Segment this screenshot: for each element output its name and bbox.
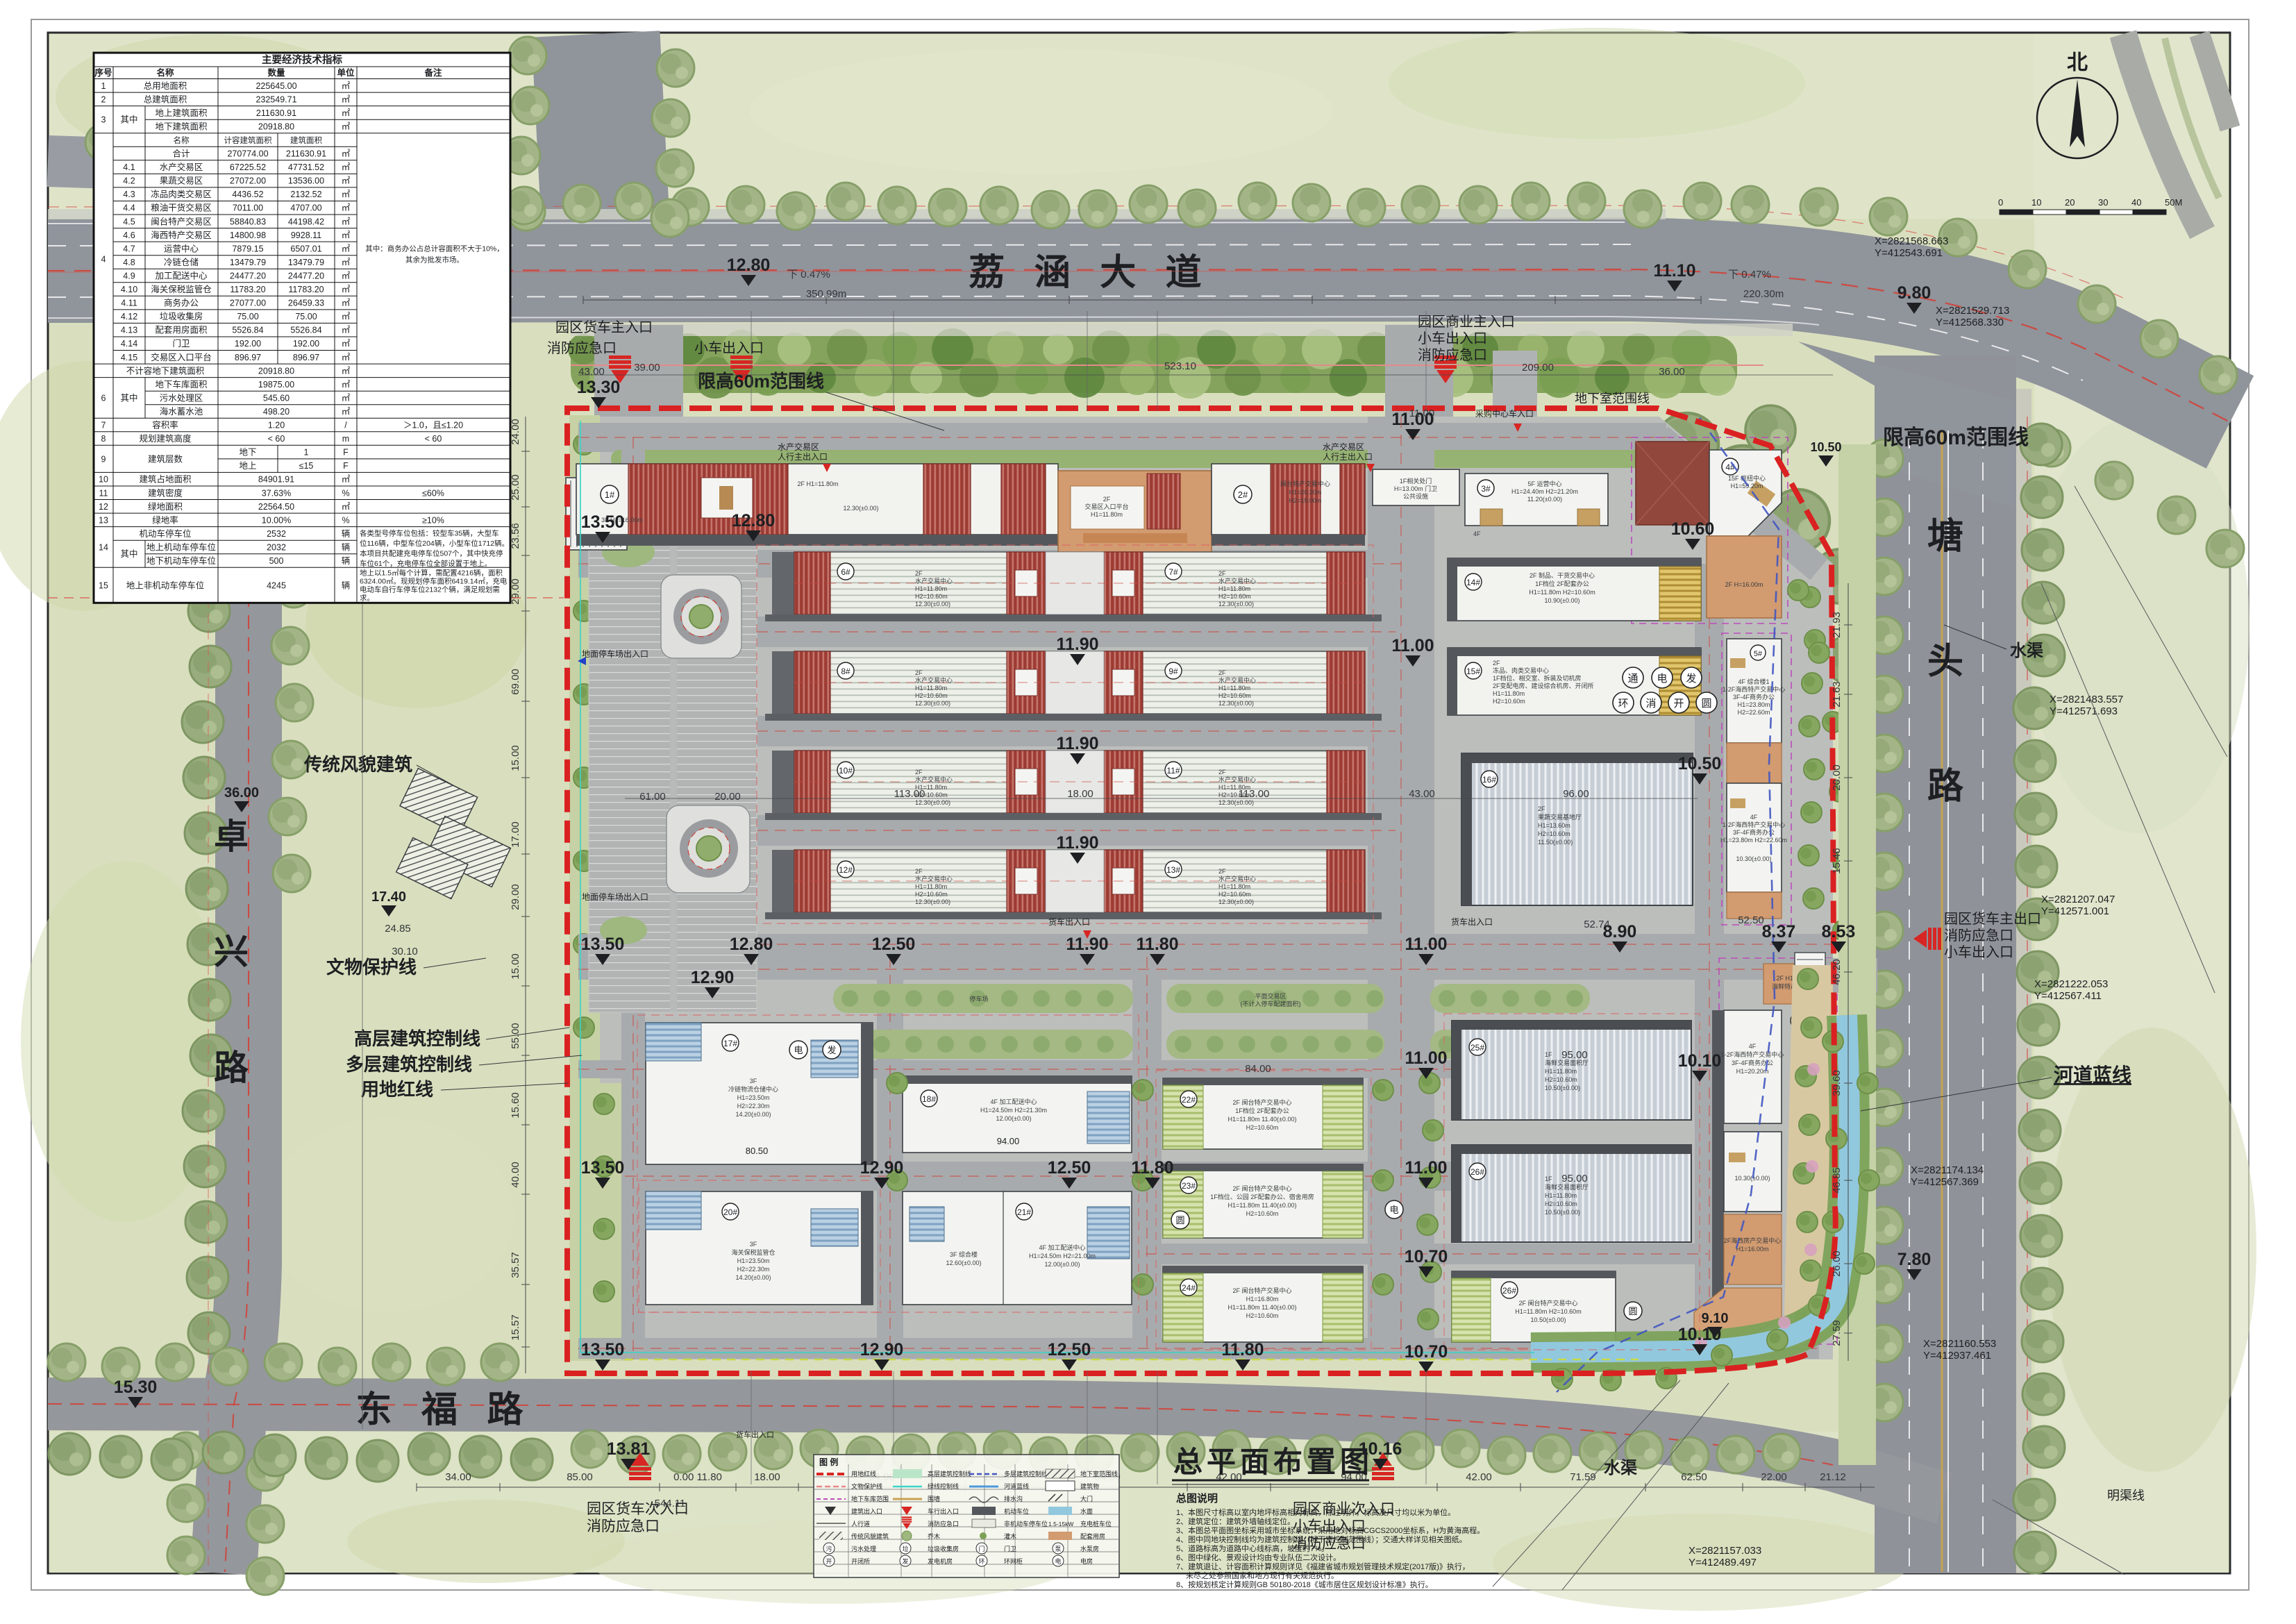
svg-text:9.80: 9.80 [1897, 283, 1932, 303]
svg-text:2F: 2F [1103, 496, 1111, 503]
svg-text:4F 加工配送中心: 4F 加工配送中心 [990, 1098, 1037, 1105]
svg-text:H2=22.30m: H2=22.30m [737, 1103, 770, 1110]
svg-text:15.00: 15.00 [510, 953, 521, 980]
svg-text:高层建筑控制线: 高层建筑控制线 [354, 1028, 480, 1049]
svg-text:消防应急口: 消防应急口 [928, 1520, 959, 1527]
svg-text:15.60: 15.60 [510, 1092, 521, 1119]
svg-text:北: 北 [2067, 51, 2088, 74]
svg-text:4.9: 4.9 [123, 271, 135, 281]
svg-text:水产交易区: 水产交易区 [778, 442, 819, 452]
svg-text:225645.00: 225645.00 [255, 81, 296, 91]
svg-text:21.12: 21.12 [1820, 1471, 1846, 1483]
svg-text:明渠线: 明渠线 [2107, 1489, 2145, 1502]
svg-text:4F: 4F [1749, 1043, 1757, 1050]
svg-text:H2=10.60m: H2=10.60m [915, 891, 948, 898]
svg-text:海西特产交易区: 海西特产交易区 [151, 230, 212, 240]
svg-text:11.90: 11.90 [1056, 734, 1098, 753]
svg-text:10.50(±0.00): 10.50(±0.00) [1531, 1316, 1566, 1323]
svg-text:路: 路 [214, 1048, 249, 1087]
svg-text:39.60: 39.60 [1831, 1070, 1843, 1096]
svg-text:4F: 4F [1750, 814, 1758, 821]
svg-text:30.10: 30.10 [392, 946, 418, 957]
svg-text:传统风貌建筑: 传统风貌建筑 [303, 754, 412, 775]
svg-text:12: 12 [99, 502, 108, 512]
svg-text:18.00: 18.00 [754, 1471, 780, 1483]
svg-text:辆: 辆 [342, 529, 351, 539]
svg-text:2F: 2F [1218, 669, 1226, 676]
svg-text:H2=10.60m: H2=10.60m [1218, 593, 1251, 600]
svg-text:29.00: 29.00 [510, 884, 521, 910]
svg-text:4.15: 4.15 [121, 353, 137, 362]
svg-text:序号: 序号 [94, 67, 112, 78]
svg-text:80.50: 80.50 [746, 1146, 769, 1156]
svg-text:绿线控制线: 绿线控制线 [928, 1482, 959, 1490]
svg-text:X=2821529.713: X=2821529.713 [1936, 305, 2009, 317]
svg-text:开: 开 [826, 1558, 832, 1565]
svg-text:≤15: ≤15 [299, 461, 314, 471]
svg-text:84901.91: 84901.91 [258, 475, 294, 485]
svg-text:/: / [344, 421, 347, 430]
svg-text:H2=10.60m: H2=10.60m [915, 593, 948, 600]
svg-text:X=2821174.134: X=2821174.134 [1911, 1164, 1984, 1176]
svg-text:地面停车场出入口: 地面停车场出入口 [582, 648, 648, 659]
svg-text:总用地面积: 总用地面积 [144, 81, 187, 91]
svg-text:Y=412937.461: Y=412937.461 [1923, 1350, 1991, 1362]
svg-text:4.13: 4.13 [121, 326, 137, 335]
svg-text:㎡: ㎡ [342, 217, 351, 226]
svg-text:运营中心: 运营中心 [164, 243, 199, 253]
svg-text:24#: 24# [1182, 1283, 1196, 1293]
svg-text:其中: 其中 [120, 392, 137, 403]
svg-text:12.30(±0.00): 12.30(±0.00) [915, 601, 950, 608]
svg-text:建筑占地面积: 建筑占地面积 [139, 474, 191, 485]
svg-text:13.50: 13.50 [581, 1340, 625, 1359]
svg-text:84.00: 84.00 [1245, 1063, 1271, 1075]
svg-text:配套用房面积: 配套用房面积 [155, 325, 207, 335]
svg-text:113.00: 113.00 [894, 788, 925, 800]
svg-text:H1=23.80m: H1=23.80m [1738, 701, 1770, 708]
svg-text:544.11: 544.11 [655, 1498, 686, 1509]
svg-text:69.00: 69.00 [510, 669, 521, 695]
svg-text:11.00: 11.00 [1409, 408, 1434, 419]
svg-text:建筑物: 建筑物 [1080, 1482, 1099, 1490]
svg-text:10.30(±0.00): 10.30(±0.00) [1736, 855, 1772, 862]
svg-text:商务办公: 商务办公 [164, 298, 199, 308]
svg-text:27.59: 27.59 [1831, 1320, 1843, 1346]
svg-text:20: 20 [2065, 197, 2075, 208]
svg-text:H1=11.80m: H1=11.80m [1218, 685, 1250, 692]
svg-text:18#: 18# [922, 1094, 936, 1104]
svg-text:17.40: 17.40 [371, 889, 406, 905]
svg-text:容积率: 容积率 [152, 420, 178, 430]
svg-text:H2=10.60m: H2=10.60m [1218, 692, 1251, 699]
svg-text:位116辆，中型车位204辆，小型车位1712辆。: 位116辆，中型车位204辆，小型车位1712辆。 [360, 539, 509, 548]
svg-text:2F H1=11.80m: 2F H1=11.80m [797, 480, 838, 487]
svg-text:15.57: 15.57 [510, 1314, 521, 1341]
svg-text:H1=11.80m H2=10.60m: H1=11.80m H2=10.60m [1515, 1308, 1581, 1315]
svg-text:10.50(±0.00): 10.50(±0.00) [1545, 1209, 1580, 1216]
svg-text:㎡: ㎡ [342, 108, 351, 118]
svg-text:0: 0 [1998, 197, 2003, 208]
svg-text:2F变配电房、建设综合机房、开闭所: 2F变配电房、建设综合机房、开闭所 [1493, 682, 1594, 689]
svg-text:㎡: ㎡ [342, 190, 351, 199]
svg-text:12.50: 12.50 [1048, 1158, 1091, 1178]
svg-text:12.80: 12.80 [730, 935, 773, 954]
svg-text:地下车库范围: 地下车库范围 [851, 1495, 889, 1502]
svg-text:12.30(±0.00): 12.30(±0.00) [1218, 601, 1254, 608]
svg-text:2F: 2F [915, 769, 923, 776]
svg-text:H2=10.60m: H2=10.60m [1218, 891, 1251, 898]
svg-text:12.00(±0.00): 12.00(±0.00) [996, 1115, 1032, 1122]
svg-text:20.00: 20.00 [714, 791, 741, 803]
svg-text:75.00: 75.00 [295, 312, 317, 321]
svg-text:H1=23.50m: H1=23.50m [737, 1257, 770, 1264]
svg-text:≥10%: ≥10% [422, 515, 444, 525]
svg-text:门卫: 门卫 [1004, 1545, 1016, 1552]
svg-text:传统风貌建筑: 传统风貌建筑 [851, 1532, 889, 1540]
svg-text:192.00: 192.00 [235, 339, 261, 349]
svg-text:H1=11.80m: H1=11.80m [1218, 883, 1250, 890]
svg-text:建筑层数: 建筑层数 [148, 453, 183, 464]
svg-text:10.50: 10.50 [1678, 754, 1722, 773]
svg-text:18.00: 18.00 [1067, 788, 1093, 800]
svg-text:29.00: 29.00 [510, 578, 521, 605]
svg-text:泵: 泵 [1055, 1546, 1061, 1552]
svg-text:2F: 2F [1538, 805, 1545, 812]
svg-text:消防应急口: 消防应急口 [1944, 928, 2013, 944]
svg-text:13.50: 13.50 [581, 1158, 625, 1178]
svg-text:X=2821483.557: X=2821483.557 [2050, 694, 2123, 705]
svg-text:4.11: 4.11 [121, 299, 137, 308]
svg-text:㎡: ㎡ [342, 94, 351, 104]
svg-text:闽台特产交易区: 闽台特产交易区 [151, 216, 212, 226]
svg-text:㎡: ㎡ [342, 203, 351, 213]
svg-text:10.90(±0.00): 10.90(±0.00) [1545, 597, 1580, 604]
svg-text:11.00: 11.00 [1391, 636, 1434, 655]
svg-text:水泵房: 水泵房 [1080, 1545, 1099, 1552]
svg-text:8.37: 8.37 [1762, 922, 1796, 941]
svg-text:H1=11.80m: H1=11.80m [1218, 585, 1250, 592]
svg-text:㎡: ㎡ [342, 271, 351, 281]
svg-text:＞1.0，且≤1.20: ＞1.0，且≤1.20 [403, 421, 463, 430]
svg-text:%: % [342, 488, 349, 498]
svg-text:0.00 11.80: 0.00 11.80 [673, 1471, 722, 1483]
svg-text:4.8: 4.8 [123, 258, 135, 267]
svg-text:规划建筑高度: 规划建筑高度 [139, 433, 192, 444]
svg-text:2F: 2F [1493, 660, 1500, 667]
svg-text:13479.79: 13479.79 [288, 258, 324, 267]
svg-text:建筑密度: 建筑密度 [148, 487, 183, 498]
svg-text:水产交易中心: 水产交易中心 [915, 776, 953, 783]
svg-text:1F: 1F [1545, 1175, 1552, 1182]
svg-text:消防应急口: 消防应急口 [547, 340, 617, 356]
svg-text:地下机动车停车位: 地下机动车停车位 [146, 555, 216, 566]
svg-text:荔 涵 大 道: 荔 涵 大 道 [969, 253, 1211, 293]
svg-text:H1=20.20m: H1=20.20m [1736, 1068, 1769, 1075]
svg-text:H1=20.20m: H1=20.20m [1289, 489, 1322, 496]
svg-text:12.30(±0.00): 12.30(±0.00) [915, 898, 950, 905]
svg-text:4.2: 4.2 [123, 176, 135, 186]
svg-text:1-2F海西特产交易中心: 1-2F海西特产交易中心 [1721, 1050, 1784, 1058]
svg-text:3F-4F商务办公: 3F-4F商务办公 [1733, 693, 1775, 701]
svg-text:数量: 数量 [267, 67, 285, 78]
svg-text:Y=412571.693: Y=412571.693 [2050, 705, 2118, 717]
svg-text:车位61个，充电停车位全部设置于地上。: 车位61个，充电停车位全部设置于地上。 [360, 559, 492, 568]
svg-text:30: 30 [2098, 197, 2108, 208]
svg-text:名称: 名称 [156, 67, 174, 78]
svg-text:货车出入口: 货车出入口 [1048, 916, 1090, 927]
svg-text:12.50: 12.50 [1048, 1340, 1091, 1359]
svg-text:43.00: 43.00 [1409, 788, 1435, 800]
svg-text:10#: 10# [839, 766, 853, 776]
svg-text:896.97: 896.97 [293, 353, 319, 362]
svg-text:2F: 2F [1218, 570, 1226, 577]
svg-text:㎡: ㎡ [342, 258, 351, 267]
svg-text:下 0.47%: 下 0.47% [1728, 269, 1771, 281]
svg-text:地下室范围线: 地下室范围线 [1575, 392, 1650, 405]
svg-text:冷链物流仓储中心: 冷链物流仓储中心 [728, 1085, 778, 1093]
svg-text:园区商业主入口: 园区商业主入口 [1418, 314, 1515, 330]
svg-text:22#: 22# [1182, 1095, 1196, 1105]
svg-text:总建筑面积: 总建筑面积 [144, 94, 187, 104]
svg-text:园区货车主入口: 园区货车主入口 [555, 319, 653, 335]
svg-text:36.00: 36.00 [224, 785, 259, 801]
svg-text:498.20: 498.20 [263, 407, 290, 417]
svg-text:地下建筑面积: 地下建筑面积 [155, 121, 207, 131]
svg-text:卓: 卓 [214, 817, 249, 856]
svg-text:人行主出入口: 人行主出入口 [778, 452, 828, 462]
svg-text:㎡: ㎡ [342, 353, 351, 362]
svg-text:11.50(±0.00): 11.50(±0.00) [1538, 839, 1573, 846]
svg-text:㎡: ㎡ [342, 122, 351, 131]
svg-text:94.00: 94.00 [997, 1136, 1020, 1146]
svg-text:1F: 1F [1545, 1051, 1552, 1058]
svg-text:非机动车停车位: 非机动车停车位 [1004, 1520, 1048, 1527]
svg-text:Y=412568.330: Y=412568.330 [1936, 317, 2004, 328]
svg-text:环网柜: 环网柜 [1004, 1557, 1023, 1565]
svg-text:H1=11.80m H2=10.60m: H1=11.80m H2=10.60m [1529, 589, 1595, 596]
svg-text:9#: 9# [1168, 667, 1178, 676]
svg-text:15#: 15# [1466, 667, 1480, 676]
svg-text:Y=412571.001: Y=412571.001 [2041, 905, 2109, 917]
svg-text:电房: 电房 [1080, 1557, 1093, 1565]
svg-text:㎡: ㎡ [342, 285, 351, 294]
svg-text:H2=10.60m: H2=10.60m [1246, 1312, 1279, 1319]
svg-text:21.93: 21.93 [1831, 612, 1843, 638]
svg-text:其中：商务办公占总计容面积不大于10%，: 其中：商务办公占总计容面积不大于10%， [365, 244, 504, 253]
svg-text:门卫: 门卫 [172, 338, 190, 349]
svg-text:消防应急口: 消防应急口 [587, 1518, 660, 1534]
svg-text:4F 加工配送中心: 4F 加工配送中心 [1039, 1244, 1085, 1251]
svg-text:3: 3 [101, 115, 106, 125]
svg-text:96.00: 96.00 [1563, 788, 1589, 800]
svg-text:多层建筑控制线: 多层建筑控制线 [1004, 1470, 1048, 1477]
svg-text:220.30m: 220.30m [1743, 288, 1784, 300]
svg-text:H1=13.60m: H1=13.60m [1538, 822, 1570, 829]
svg-text:各类型号停车位包括：铰型车35辆，大型车: 各类型号停车位包括：铰型车35辆，大型车 [360, 529, 499, 538]
svg-text:充电桩车位: 充电桩车位 [1080, 1520, 1112, 1527]
svg-text:20#: 20# [723, 1207, 737, 1217]
svg-text:1F相关处门: 1F相关处门 [1400, 477, 1432, 485]
svg-text:水产交易中心: 水产交易中心 [1218, 577, 1256, 585]
svg-text:人行主出入口: 人行主出入口 [1323, 452, 1373, 462]
svg-text:消: 消 [1645, 698, 1656, 710]
svg-text:塘: 塘 [1927, 517, 1963, 557]
svg-text:< 60: < 60 [268, 434, 285, 444]
svg-text:11.00: 11.00 [1405, 935, 1447, 954]
svg-text:10.50: 10.50 [1810, 440, 1841, 454]
svg-text:4: 4 [101, 254, 106, 264]
svg-text:3F 综合楼: 3F 综合楼 [950, 1250, 978, 1258]
svg-text:44198.42: 44198.42 [288, 217, 324, 226]
svg-text:交易区入口平台: 交易区入口平台 [1084, 503, 1128, 510]
svg-text:232549.71: 232549.71 [255, 94, 296, 104]
svg-text:兴: 兴 [214, 932, 249, 971]
svg-text:灌木: 灌木 [1004, 1532, 1016, 1540]
svg-text:高层建筑控制线: 高层建筑控制线 [928, 1470, 971, 1477]
svg-text:21#: 21# [1017, 1207, 1031, 1217]
svg-text:地下车库面积: 地下车库面积 [155, 379, 207, 390]
svg-text:15.46: 15.46 [1831, 848, 1843, 874]
svg-text:H2=10.60m: H2=10.60m [1493, 698, 1525, 705]
svg-text:52.74: 52.74 [1584, 919, 1610, 930]
svg-text:55.00: 55.00 [510, 1023, 521, 1049]
svg-text:未尽之处参照国家和地方现行有关规范执行。: 未尽之处参照国家和地方现行有关规范执行。 [1176, 1571, 1339, 1580]
svg-text:19875.00: 19875.00 [258, 380, 294, 390]
svg-text:15: 15 [99, 580, 108, 590]
svg-text:闽台特产交易中心: 闽台特产交易中心 [1280, 480, 1330, 487]
svg-text:14800.98: 14800.98 [230, 231, 266, 240]
svg-text:13536.00: 13536.00 [288, 176, 324, 186]
svg-text:95.00: 95.00 [1561, 1173, 1588, 1184]
svg-text:3F-4F商务办公: 3F-4F商务办公 [1733, 828, 1775, 836]
svg-text:粮油干货交易区: 粮油干货交易区 [151, 203, 212, 213]
svg-text:11.80: 11.80 [1136, 935, 1178, 954]
svg-text:门: 门 [978, 1545, 984, 1552]
svg-text:2F: 2F [915, 868, 923, 875]
svg-text:Y=412489.497: Y=412489.497 [1689, 1557, 1757, 1568]
svg-text:㎡: ㎡ [342, 244, 351, 253]
svg-text:11.10: 11.10 [1653, 261, 1695, 281]
svg-text:水产交易中心: 水产交易中心 [915, 676, 953, 684]
svg-text:㎡: ㎡ [342, 366, 351, 376]
svg-text:㎡: ㎡ [342, 81, 351, 91]
svg-text:㎡: ㎡ [342, 312, 351, 321]
svg-text:13.50: 13.50 [581, 512, 625, 532]
svg-text:其中: 其中 [120, 549, 137, 559]
svg-text:消防应急口: 消防应急口 [1418, 347, 1487, 363]
svg-text:11: 11 [99, 488, 108, 498]
svg-text:4#: 4# [1725, 462, 1735, 472]
svg-text:H1=11.80m: H1=11.80m [915, 685, 947, 692]
svg-text:X=2821568.663: X=2821568.663 [1875, 235, 1948, 247]
svg-text:10.70: 10.70 [1405, 1247, 1448, 1266]
svg-text:H2=10.60m: H2=10.60m [1545, 1076, 1577, 1083]
svg-text:13: 13 [99, 515, 108, 525]
svg-text:冻品肉类交易区: 冻品肉类交易区 [151, 189, 212, 199]
svg-text:平面交易区: 平面交易区 [1255, 992, 1286, 1000]
svg-text:5526.84: 5526.84 [290, 326, 321, 335]
svg-text:H2=10.60m: H2=10.60m [1538, 830, 1570, 837]
svg-text:11#: 11# [1166, 766, 1180, 776]
svg-text:2F: 2F [1218, 769, 1226, 776]
svg-text:11.90: 11.90 [1056, 635, 1098, 654]
svg-text:合计: 合计 [172, 149, 190, 159]
svg-text:1.5-15kW: 1.5-15kW [1048, 1521, 1073, 1527]
svg-text:乔木: 乔木 [928, 1532, 940, 1540]
svg-text:12.30(±0.00): 12.30(±0.00) [1218, 898, 1254, 905]
svg-text:3F: 3F [750, 1078, 757, 1085]
svg-text:H1=11.80m: H1=11.80m [1545, 1192, 1577, 1199]
svg-text:发: 发 [827, 1045, 836, 1055]
svg-text:绿地面积: 绿地面积 [148, 501, 183, 512]
svg-text:下 0.47%: 下 0.47% [787, 269, 830, 281]
svg-text:40: 40 [2131, 197, 2141, 208]
svg-text:12.80: 12.80 [732, 511, 776, 530]
svg-text:95.00: 95.00 [1561, 1049, 1588, 1061]
svg-text:停车场: 停车场 [969, 995, 988, 1003]
svg-text:5F 运营中心: 5F 运营中心 [1527, 480, 1561, 487]
svg-text:排水沟: 排水沟 [1004, 1495, 1023, 1502]
svg-text:总平面布置图: 总平面布置图 [1173, 1446, 1373, 1478]
svg-text:东 福 路: 东 福 路 [356, 1390, 533, 1430]
svg-text:H1=16.00m: H1=16.00m [1736, 1246, 1769, 1253]
svg-text:交易区入口平台: 交易区入口平台 [151, 352, 212, 362]
svg-text:1: 1 [101, 81, 106, 91]
svg-text:限高60m范围线: 限高60m范围线 [698, 371, 824, 392]
svg-text:污水处理区: 污水处理区 [160, 393, 203, 403]
svg-text:12.80: 12.80 [727, 256, 771, 275]
svg-text:47731.52: 47731.52 [288, 162, 324, 172]
svg-text:开闭所: 开闭所 [851, 1557, 870, 1565]
svg-text:4F 综合楼1: 4F 综合楼1 [1738, 678, 1769, 685]
svg-text:12.60(±0.00): 12.60(±0.00) [946, 1259, 982, 1266]
svg-text:地下: 地下 [239, 448, 256, 458]
svg-text:211630.91: 211630.91 [256, 108, 296, 118]
svg-text:8.53: 8.53 [1822, 922, 1856, 941]
svg-text:绿地率: 绿地率 [152, 514, 178, 525]
svg-text:2: 2 [101, 94, 106, 104]
svg-text:10.60: 10.60 [1671, 519, 1715, 539]
svg-text:主要经济技术指标: 主要经济技术指标 [262, 53, 342, 66]
svg-text:15.00: 15.00 [510, 745, 521, 771]
svg-text:7、建筑退让、计容面积计算规则详见《福建省城市规划管理技术规: 7、建筑退让、计容面积计算规则详见《福建省城市规划管理技术规定(2017版)》执… [1176, 1562, 1470, 1571]
svg-text:机动车位: 机动车位 [1004, 1507, 1029, 1515]
svg-text:H2=22.60m: H2=22.60m [1738, 709, 1770, 716]
svg-text:H1=11.80m 11.40(±0.00): H1=11.80m 11.40(±0.00) [1228, 1202, 1297, 1209]
svg-text:23.56: 23.56 [510, 523, 521, 549]
svg-text:H1=11.80m 11.40(±0.00): H1=11.80m 11.40(±0.00) [1228, 1304, 1297, 1311]
svg-text:H2=10.60m: H2=10.60m [1246, 1124, 1279, 1131]
svg-text:5、道路标高为道路中心线标高，坡度约7%。: 5、道路标高为道路中心线标高，坡度约7%。 [1176, 1543, 1329, 1553]
svg-text:1#: 1# [605, 489, 615, 500]
svg-text:水产交易区: 水产交易区 [1323, 442, 1364, 452]
svg-text:12.90: 12.90 [860, 1340, 904, 1359]
svg-text:垃圾收集房: 垃圾收集房 [928, 1545, 959, 1552]
svg-text:小车出入口: 小车出入口 [1944, 944, 2013, 960]
svg-text:河道蓝线: 河道蓝线 [2054, 1064, 2131, 1086]
svg-text:果蔬交易基地厅: 果蔬交易基地厅 [1538, 813, 1582, 821]
svg-text:2F 闽台特产交易中心: 2F 闽台特产交易中心 [1518, 1299, 1577, 1307]
svg-text:地上非机动车停车位: 地上非机动车停车位 [126, 580, 205, 590]
svg-text:H1=24.50m H2=21.00m: H1=24.50m H2=21.00m [1029, 1253, 1096, 1259]
svg-text:6#: 6# [841, 567, 850, 577]
svg-text:建筑面积: 建筑面积 [290, 135, 322, 145]
svg-text:图 例: 图 例 [819, 1457, 838, 1467]
svg-text:10.50(±0.00): 10.50(±0.00) [1545, 1085, 1580, 1091]
svg-text:4F: 4F [1473, 530, 1481, 537]
svg-text:围墙: 围墙 [928, 1495, 940, 1502]
